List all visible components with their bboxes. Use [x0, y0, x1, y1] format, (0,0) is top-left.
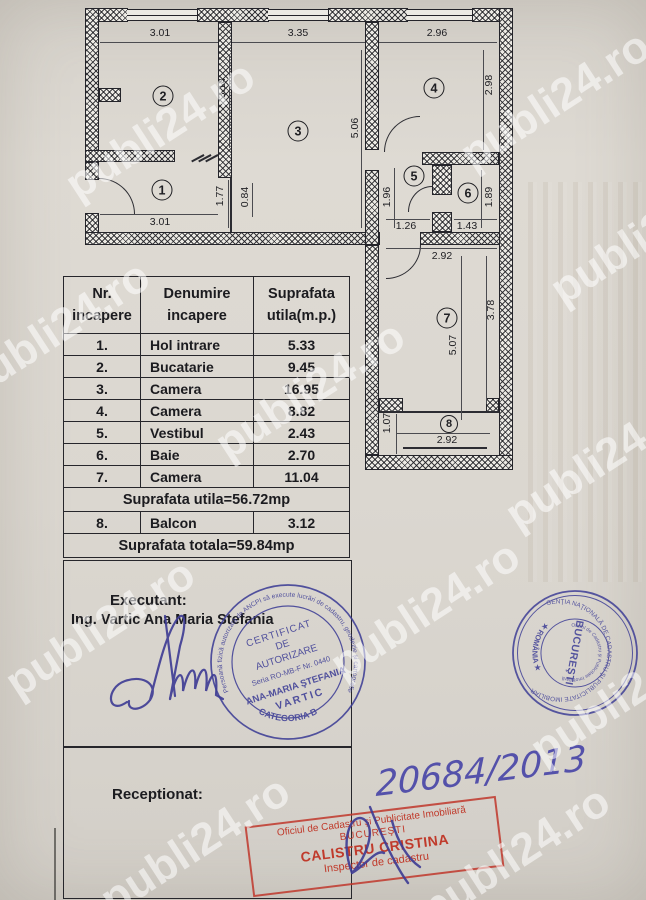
room-number-label: 4	[431, 81, 438, 95]
dim-label: 3.14	[216, 78, 228, 98]
dimension-line	[394, 168, 395, 228]
wall-segment	[365, 245, 379, 455]
wall-segment	[499, 8, 513, 470]
row-name: Bucatarie	[140, 356, 253, 377]
room-number-6: 6	[458, 183, 479, 204]
row-nr: 1.	[64, 334, 140, 355]
row-nr: 8.	[64, 512, 140, 533]
balcony-window-line	[403, 447, 487, 449]
dimension-line	[486, 256, 487, 404]
wall-segment	[432, 165, 452, 195]
dim-label: 2.92	[437, 434, 457, 446]
background-texture	[528, 182, 646, 582]
wall-segment	[432, 212, 452, 232]
row-area: 8.82	[253, 400, 349, 421]
row-area: 3.12	[253, 512, 349, 533]
dim-label: 5.07	[447, 335, 459, 355]
dimension-line	[461, 256, 462, 420]
dim-label: 3.01	[150, 27, 170, 39]
header-denumire: Denumire incapere	[140, 277, 253, 333]
row-name: Balcon	[140, 512, 253, 533]
row-area: 16.95	[253, 378, 349, 399]
room-number-label: 8	[446, 418, 452, 430]
wall-segment	[85, 150, 175, 162]
wall-segment	[328, 8, 408, 22]
door-arc	[99, 178, 135, 214]
room-number-1: 1	[152, 180, 173, 201]
inspector-signature	[322, 793, 442, 893]
dimension-line	[396, 414, 397, 454]
dimension-line	[481, 170, 482, 228]
row-nr: 3.	[64, 378, 140, 399]
dim-label: 1.43	[457, 220, 477, 232]
row-name: Camera	[140, 378, 253, 399]
wall-segment	[85, 8, 99, 152]
row-nr: 6.	[64, 444, 140, 465]
row-name: Hol intrare	[140, 334, 253, 355]
dim-label: 1.96	[381, 187, 393, 207]
table-row: 3. Camera 16.95	[64, 377, 349, 399]
room-number-2: 2	[153, 86, 174, 107]
room-number-label: 6	[465, 186, 472, 200]
dim-label: 5.06	[349, 118, 361, 138]
dimension-line	[232, 42, 365, 43]
dimension-line	[379, 42, 497, 43]
document-photo: 1 2 3 4 5 6 7 8 3.01 3.35 2.96 3.14 5.06…	[0, 0, 646, 900]
dimension-line	[252, 183, 253, 217]
total-row: Suprafata totala=59.84mp	[64, 533, 349, 557]
table-row: 4. Camera 8.82	[64, 399, 349, 421]
door-arc	[386, 245, 421, 279]
subtotal-text: Suprafata utila=56.72mp	[64, 488, 349, 511]
dim-label: 3.01	[150, 216, 170, 228]
wall-segment	[197, 8, 269, 22]
room-number-label: 1	[159, 183, 166, 197]
dim-label: 0.84	[239, 187, 251, 207]
wall-segment	[365, 22, 379, 150]
table-header-row: Nr. incapere Denumire incapere Suprafata…	[64, 277, 349, 333]
table-row: 2. Bucatarie 9.45	[64, 355, 349, 377]
row-nr: 4.	[64, 400, 140, 421]
window-segment	[407, 9, 473, 21]
dim-label: 1.89	[483, 187, 495, 207]
row-name: Camera	[140, 466, 253, 487]
dim-label: 2.96	[427, 27, 447, 39]
row-area: 5.33	[253, 334, 349, 355]
balcony-divider-line	[379, 411, 499, 413]
door-arc	[384, 116, 420, 152]
door-arc	[408, 186, 432, 212]
room-number-4: 4	[424, 78, 445, 99]
wall-segment	[365, 170, 379, 245]
header-suprafata: Suprafata utila(m.p.)	[253, 277, 349, 333]
table-row: 7. Camera 11.04	[64, 465, 349, 487]
wall-segment	[85, 162, 99, 180]
table-row: 1. Hol intrare 5.33	[64, 333, 349, 355]
dim-label: 3.78	[485, 300, 497, 320]
row-name: Baie	[140, 444, 253, 465]
dim-label: 3.35	[288, 27, 308, 39]
subtotal-row: Suprafata utila=56.72mp	[64, 487, 349, 511]
authorization-stamp: Persoană fizică autorizată de ANCPI să e…	[203, 577, 373, 747]
room-number-label: 2	[160, 89, 167, 103]
row-area: 9.45	[253, 356, 349, 377]
stamp-romania-text: ★ ROMÂNIA ★	[526, 620, 552, 675]
wall-segment	[85, 232, 380, 245]
room-number-label: 7	[444, 311, 451, 325]
room-number-8: 8	[440, 415, 458, 433]
dim-label: 1.77	[214, 186, 226, 206]
row-nr: 5.	[64, 422, 140, 443]
dimension-line	[483, 50, 484, 150]
row-name: Camera	[140, 400, 253, 421]
room-number-label: 3	[295, 124, 302, 138]
row-area: 11.04	[253, 466, 349, 487]
dimension-line	[100, 42, 218, 43]
wall-segment	[99, 88, 121, 102]
areas-table: Nr. incapere Denumire incapere Suprafata…	[63, 276, 350, 558]
dim-label: 2.98	[483, 75, 495, 95]
window-segment	[127, 9, 198, 21]
wall-segment	[422, 152, 499, 165]
table-row: 5. Vestibul 2.43	[64, 421, 349, 443]
window-segment	[268, 9, 329, 21]
paper-edge-shadow	[54, 828, 56, 900]
dim-label: 1.26	[396, 220, 416, 232]
header-nr: Nr. incapere	[64, 277, 140, 333]
ancpi-stamp: AGENŢIA NAŢIONALĂ DE CADASTRU ŞI PUBLICI…	[505, 583, 645, 723]
room-number-5: 5	[404, 166, 425, 187]
room-number-label: 5	[411, 169, 418, 183]
receptionat-label: Receptionat:	[112, 786, 203, 803]
row-name: Vestibul	[140, 422, 253, 443]
dimension-line	[361, 50, 362, 228]
room-number-3: 3	[288, 121, 309, 142]
row-nr: 7.	[64, 466, 140, 487]
dim-label: 2.92	[432, 250, 452, 262]
partition-line	[230, 178, 232, 232]
dimension-line	[386, 248, 497, 249]
row-area: 2.43	[253, 422, 349, 443]
dim-label: 1.07	[381, 413, 393, 433]
dimension-line	[229, 55, 230, 148]
room-number-7: 7	[437, 308, 458, 329]
dimension-line	[100, 214, 218, 215]
dimension-line	[228, 180, 229, 228]
svg-text:★ ROMÂNIA ★: ★ ROMÂNIA ★	[526, 620, 552, 675]
row-area: 2.70	[253, 444, 349, 465]
wall-segment	[365, 455, 513, 470]
balcony-row: 8. Balcon 3.12	[64, 511, 349, 533]
table-row: 6. Baie 2.70	[64, 443, 349, 465]
total-text: Suprafata totala=59.84mp	[64, 534, 349, 557]
row-nr: 2.	[64, 356, 140, 377]
